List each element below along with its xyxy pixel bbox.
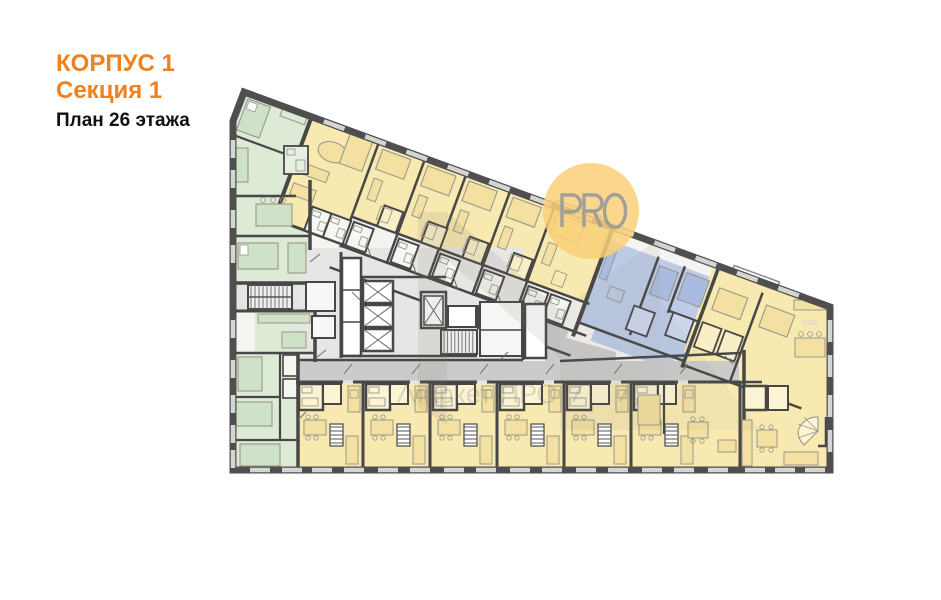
svg-text:маркет ПРО: маркет ПРО (405, 379, 558, 409)
